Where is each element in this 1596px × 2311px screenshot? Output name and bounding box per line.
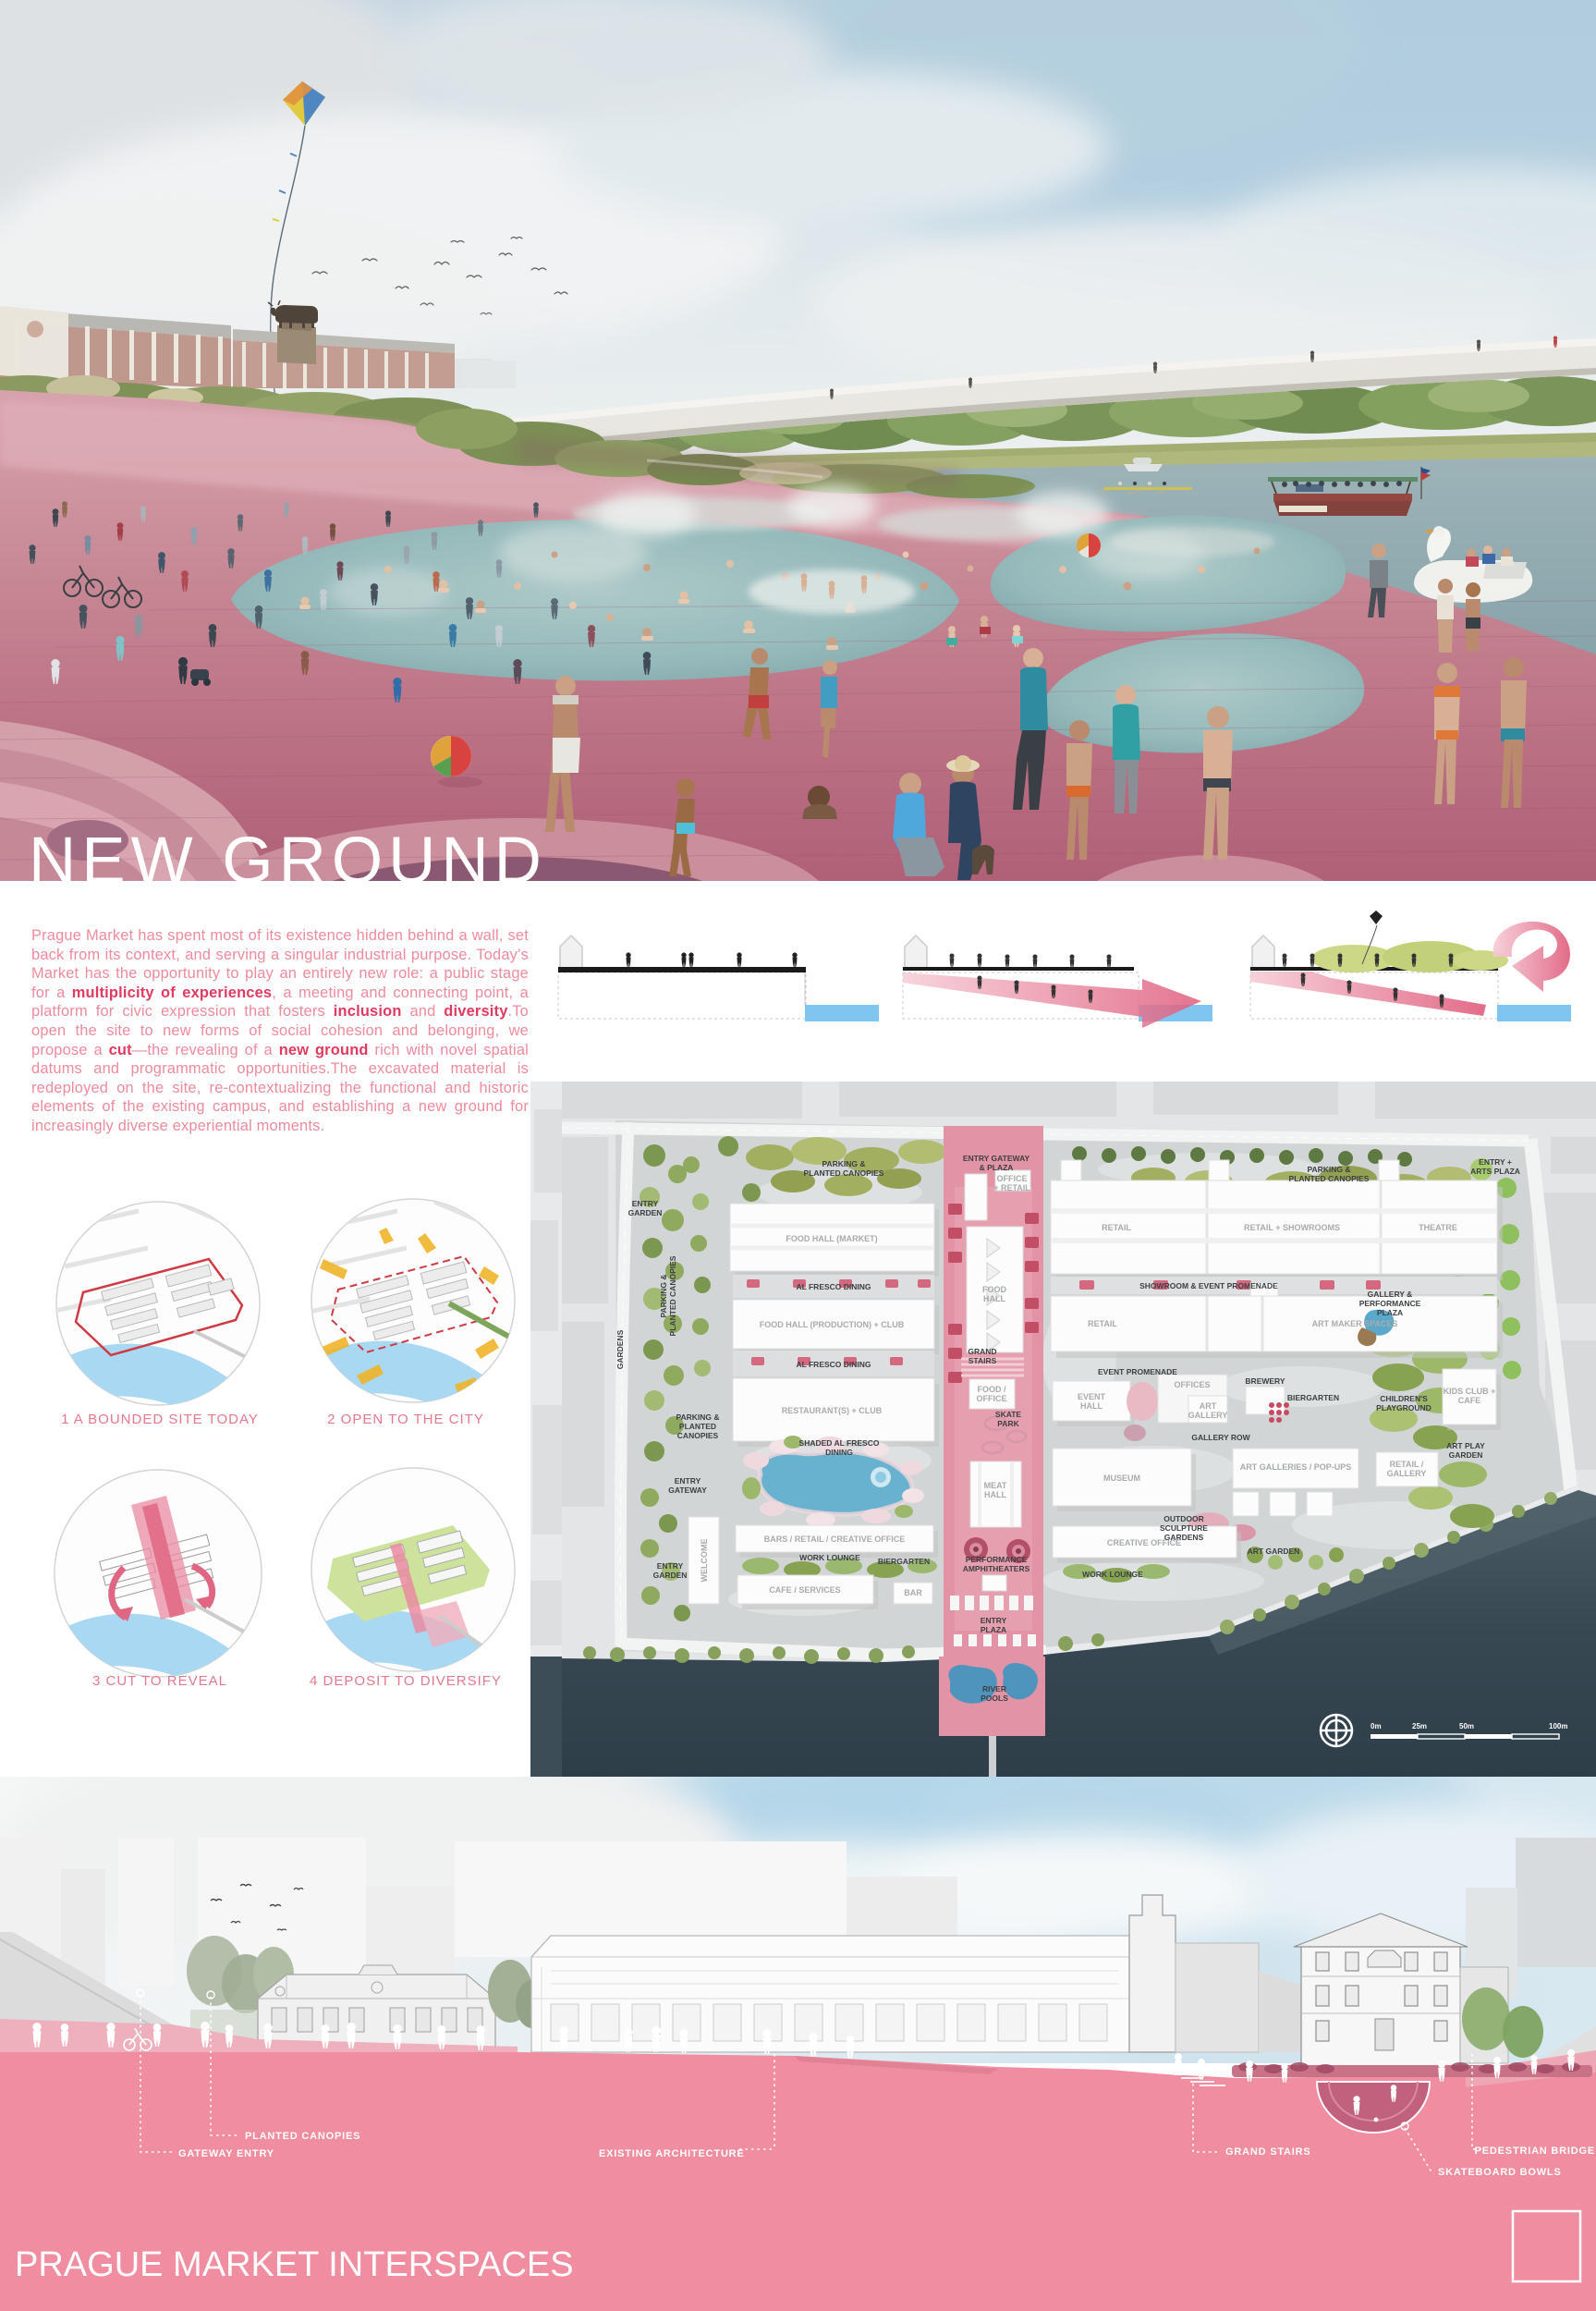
svg-text:ART MAKER SPACES: ART MAKER SPACES xyxy=(1312,1319,1398,1328)
svg-text:BREWERY: BREWERY xyxy=(1245,1376,1285,1386)
svg-text:& PLAZA: & PLAZA xyxy=(980,1163,1014,1172)
svg-text:DINING: DINING xyxy=(825,1448,853,1457)
svg-text:ENTRY GATEWAY: ENTRY GATEWAY xyxy=(963,1154,1030,1163)
svg-text:2 OPEN TO THE CITY: 2 OPEN TO THE CITY xyxy=(327,1412,484,1427)
svg-text:WORK LOUNGE: WORK LOUNGE xyxy=(1082,1570,1143,1579)
svg-text:FOOD HALL (PRODUCTION) + CLUB: FOOD HALL (PRODUCTION) + CLUB xyxy=(760,1320,905,1329)
svg-text:GRAND STAIRS: GRAND STAIRS xyxy=(1225,2146,1311,2158)
svg-text:PLANTED CANOPIES: PLANTED CANOPIES xyxy=(668,1255,677,1336)
svg-text:RETAIL: RETAIL xyxy=(1102,1223,1131,1232)
svg-text:MEAT: MEAT xyxy=(984,1481,1007,1490)
svg-text:PARKING &: PARKING & xyxy=(676,1412,719,1422)
svg-text:WORK LOUNGE: WORK LOUNGE xyxy=(799,1553,860,1562)
svg-text:GARDEN: GARDEN xyxy=(1449,1450,1483,1460)
svg-text:OFFICE: OFFICE xyxy=(977,1394,1007,1403)
svg-text:GARDEN: GARDEN xyxy=(628,1208,663,1217)
svg-text:PARK: PARK xyxy=(997,1419,1019,1428)
svg-text:1 A BOUNDED SITE TODAY: 1 A BOUNDED SITE TODAY xyxy=(61,1412,259,1427)
svg-text:PARKING &: PARKING & xyxy=(1307,1165,1350,1174)
svg-text:EVENT: EVENT xyxy=(1078,1392,1106,1401)
svg-text:STAIRS: STAIRS xyxy=(969,1356,997,1365)
svg-text:PERFORMANCE: PERFORMANCE xyxy=(966,1555,1028,1564)
svg-text:ENTRY: ENTRY xyxy=(981,1616,1007,1625)
svg-text:PRAGUE MARKET INTERSPACES: PRAGUE MARKET INTERSPACES xyxy=(15,2245,574,2284)
svg-text:GALLERY &: GALLERY & xyxy=(1368,1290,1413,1299)
svg-text:4 DEPOSIT TO DIVERSIFY: 4 DEPOSIT TO DIVERSIFY xyxy=(310,1673,502,1689)
svg-text:3 CUT TO REVEAL: 3 CUT TO REVEAL xyxy=(92,1673,227,1689)
svg-text:BAR: BAR xyxy=(904,1588,922,1597)
svg-text:AMPHITHEATERS: AMPHITHEATERS xyxy=(963,1564,1030,1573)
svg-text:ART PLAY: ART PLAY xyxy=(1446,1441,1485,1450)
svg-text:100m: 100m xyxy=(1549,1722,1567,1730)
svg-text:FOOD HALL (MARKET): FOOD HALL (MARKET) xyxy=(786,1234,877,1243)
svg-text:PERFORMANCE: PERFORMANCE xyxy=(1359,1299,1421,1308)
svg-text:OFFICE: OFFICE xyxy=(997,1174,1028,1183)
svg-text:GALLERY: GALLERY xyxy=(1188,1411,1228,1420)
svg-text:OFFICES: OFFICES xyxy=(1174,1380,1210,1389)
svg-text:25m: 25m xyxy=(1412,1722,1427,1730)
svg-text:CAFE / SERVICES: CAFE / SERVICES xyxy=(769,1585,840,1595)
svg-text:BIERGARTEN: BIERGARTEN xyxy=(878,1557,930,1566)
svg-text:PLAZA: PLAZA xyxy=(1377,1308,1403,1317)
svg-text:PLAYGROUND: PLAYGROUND xyxy=(1376,1403,1432,1412)
svg-text:SCULPTURE: SCULPTURE xyxy=(1160,1523,1208,1533)
svg-text:50m: 50m xyxy=(1459,1722,1474,1730)
svg-text:AL FRESCO DINING: AL FRESCO DINING xyxy=(796,1360,871,1369)
svg-text:POOLS: POOLS xyxy=(981,1694,1008,1703)
svg-text:SKATEBOARD BOWLS: SKATEBOARD BOWLS xyxy=(1438,2167,1562,2178)
svg-text:SKATE: SKATE xyxy=(995,1410,1022,1419)
svg-text:RETAIL /: RETAIL / xyxy=(1390,1460,1424,1469)
svg-text:GRAND: GRAND xyxy=(968,1347,996,1356)
svg-text:GARDEN: GARDEN xyxy=(653,1571,688,1580)
svg-text:SHOWROOM & EVENT PROMENADE: SHOWROOM & EVENT PROMENADE xyxy=(1139,1281,1278,1290)
svg-text:GARDENS: GARDENS xyxy=(615,1329,625,1369)
svg-text:PEDESTRIAN BRIDGE: PEDESTRIAN BRIDGE xyxy=(1475,2146,1595,2157)
svg-text:HALL: HALL xyxy=(983,1294,1005,1303)
svg-text:ENTRY: ENTRY xyxy=(675,1476,701,1486)
svg-text:0m: 0m xyxy=(1371,1722,1382,1730)
svg-text:BARS / RETAIL / CREATIVE OFFIC: BARS / RETAIL / CREATIVE OFFICE xyxy=(764,1535,906,1544)
svg-text:ENTRY: ENTRY xyxy=(632,1199,659,1208)
svg-text:PLANTED CANOPIES: PLANTED CANOPIES xyxy=(1289,1174,1370,1183)
svg-text:ENTRY +: ENTRY + xyxy=(1479,1157,1512,1167)
svg-text:GALLERY: GALLERY xyxy=(1387,1469,1427,1478)
svg-text:SHADED AL FRESCO: SHADED AL FRESCO xyxy=(799,1438,880,1448)
svg-text:GATEWAY ENTRY: GATEWAY ENTRY xyxy=(178,2148,274,2159)
svg-text:FOOD /: FOOD / xyxy=(978,1385,1006,1394)
svg-text:KIDS CLUB +: KIDS CLUB + xyxy=(1444,1387,1496,1396)
svg-text:OUTDOOR: OUTDOOR xyxy=(1163,1514,1203,1523)
svg-text:GATEWAY: GATEWAY xyxy=(668,1486,707,1495)
svg-text:AL FRESCO DINING: AL FRESCO DINING xyxy=(796,1282,871,1291)
svg-text:+ RETAIL: + RETAIL xyxy=(993,1183,1030,1192)
svg-text:RESTAURANT(S) + CLUB: RESTAURANT(S) + CLUB xyxy=(782,1406,883,1415)
svg-text:MUSEUM: MUSEUM xyxy=(1103,1473,1140,1483)
svg-text:THEATRE: THEATRE xyxy=(1419,1223,1457,1232)
svg-text:PLANTED CANOPIES: PLANTED CANOPIES xyxy=(804,1168,884,1178)
svg-text:PARKING &: PARKING & xyxy=(822,1159,865,1168)
svg-text:BIERGARTEN: BIERGARTEN xyxy=(1287,1393,1339,1402)
svg-text:ART GALLERIES / POP-UPS: ART GALLERIES / POP-UPS xyxy=(1240,1462,1352,1472)
svg-text:PLAZA: PLAZA xyxy=(981,1625,1006,1634)
svg-text:HALL: HALL xyxy=(984,1490,1006,1499)
svg-text:ARTS PLAZA: ARTS PLAZA xyxy=(1470,1167,1520,1176)
svg-text:ART GARDEN: ART GARDEN xyxy=(1248,1547,1300,1556)
svg-text:EXISTING ARCHITECTURE: EXISTING ARCHITECTURE xyxy=(599,2148,745,2159)
svg-text:RETAIL + SHOWROOMS: RETAIL + SHOWROOMS xyxy=(1244,1223,1340,1232)
svg-text:CAFE: CAFE xyxy=(1458,1396,1481,1405)
svg-text:PARKING &: PARKING & xyxy=(659,1274,668,1317)
svg-text:PLANTED CANOPIES: PLANTED CANOPIES xyxy=(245,2131,360,2142)
svg-text:RIVER: RIVER xyxy=(982,1684,1006,1694)
svg-text:WELCOME: WELCOME xyxy=(700,1539,709,1583)
svg-text:EVENT PROMENADE: EVENT PROMENADE xyxy=(1098,1367,1177,1376)
svg-text:ENTRY: ENTRY xyxy=(657,1561,684,1571)
svg-text:CANOPIES: CANOPIES xyxy=(677,1431,719,1440)
svg-text:ART: ART xyxy=(1200,1401,1217,1411)
svg-text:RETAIL: RETAIL xyxy=(1088,1319,1117,1328)
svg-text:HALL: HALL xyxy=(1080,1401,1103,1411)
svg-text:CHILDREN'S: CHILDREN'S xyxy=(1380,1394,1428,1403)
svg-text:PLANTED: PLANTED xyxy=(679,1422,716,1431)
svg-text:GALLERY ROW: GALLERY ROW xyxy=(1191,1433,1250,1442)
svg-text:FOOD: FOOD xyxy=(982,1285,1006,1294)
svg-text:CREATIVE OFFICE: CREATIVE OFFICE xyxy=(1107,1538,1181,1547)
